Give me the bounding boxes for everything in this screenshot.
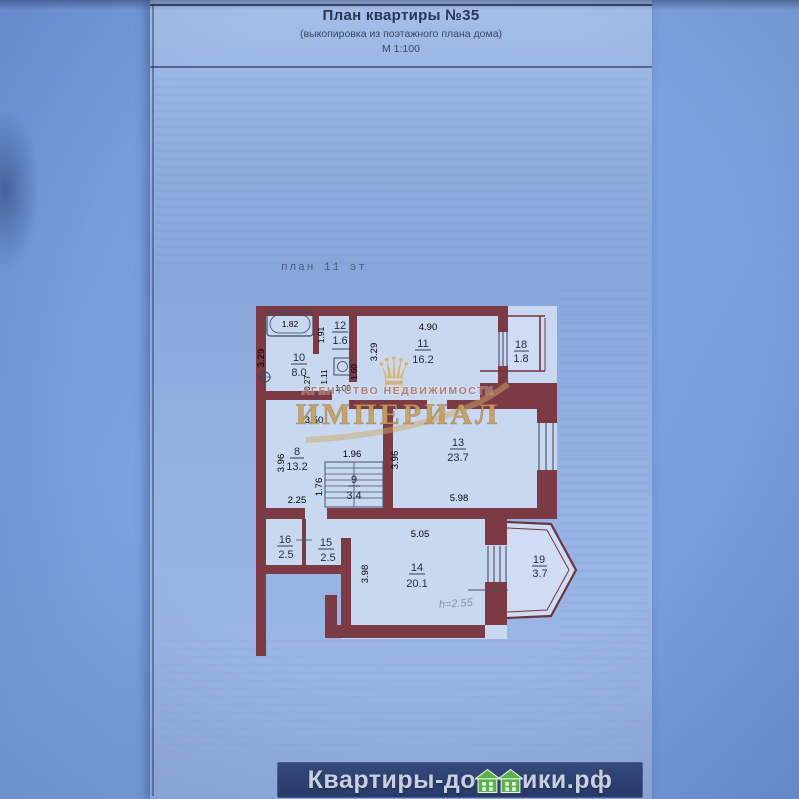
room-15-number: 15 (320, 537, 332, 549)
room-14-area: 20.1 (406, 578, 427, 590)
dim-196: 1.96 (343, 449, 362, 460)
site-watermark-bar: Квартиры-до ики.рф (277, 762, 643, 798)
room-10-number: 10 (293, 352, 305, 364)
room-11-number: 11 (417, 338, 428, 350)
room-16-area: 2.5 (278, 549, 293, 561)
room-8-area: 13.2 (286, 461, 307, 473)
dim-111: 1.11 (320, 369, 329, 385)
room-19-area: 3.7 (532, 568, 547, 580)
dim-396-room13: 3.96 (390, 451, 401, 470)
handwritten-height-note: h=2.55 (438, 597, 474, 611)
room-13-number: 13 (452, 437, 464, 449)
house-icon (475, 769, 500, 793)
room-13-area: 23.7 (447, 452, 468, 464)
room-9-area: 3.4 (346, 490, 361, 502)
dim-225: 2.25 (288, 495, 307, 506)
house-icon (498, 769, 523, 793)
agency-name-small: АГЕНТСТВО НЕДВИЖИМОСТИ (302, 385, 494, 397)
room-12-area: 1.6 (332, 335, 347, 347)
dim-396-room8: 3.96 (276, 454, 287, 473)
room-15-area: 2.5 (320, 552, 335, 564)
room-12-number: 12 (334, 320, 346, 332)
room-18-area: 1.8 (513, 353, 528, 365)
dim-490: 4.90 (419, 322, 438, 333)
room-16-number: 16 (279, 534, 291, 546)
agency-name-big: ИМПЕРИАЛ (296, 398, 501, 431)
photo-of-floor-plan-document: { "header": { "title": "План квартиры №3… (0, 0, 799, 799)
site-name-prefix: Квартиры-до (308, 766, 476, 795)
room-18-number: 18 (515, 339, 527, 351)
dim-191: 1.91 (316, 326, 326, 343)
room-14-number: 14 (411, 562, 423, 574)
dim-left-329: 3.29 (256, 349, 267, 368)
dim-176: 1.76 (314, 478, 325, 497)
dim-bathtub: 1.82 (282, 319, 299, 329)
room-11-area: 16.2 (412, 354, 433, 366)
dim-398-room14: 3.98 (360, 565, 371, 584)
dim-160: 1.60 (350, 364, 359, 380)
room-9-number: 9 (351, 474, 357, 486)
dim-505: 5.05 (411, 529, 430, 540)
room-19-number: 19 (533, 554, 545, 566)
dim-598: 5.98 (450, 493, 469, 504)
site-name-suffix: ики.рф (522, 766, 612, 795)
room-8-number: 8 (294, 446, 300, 458)
floor-plan-svg: 10 8.0 12 1.6 11 16.2 18 1.8 8 13.2 9 3.… (0, 0, 799, 799)
